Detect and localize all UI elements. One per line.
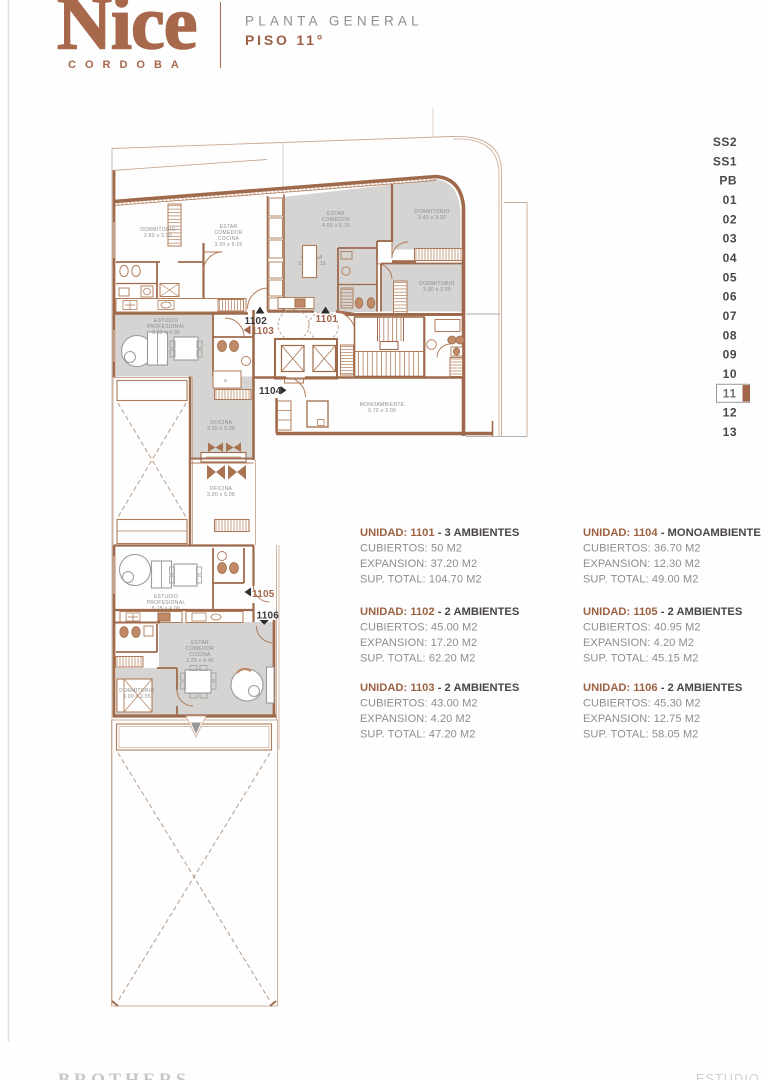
- svg-text:11: 11: [723, 388, 737, 400]
- svg-text:EXPANSION: 12.75 M2: EXPANSION: 12.75 M2: [583, 713, 700, 725]
- svg-text:SUP. TOTAL: 49.00 M2: SUP. TOTAL: 49.00 M2: [583, 574, 699, 586]
- svg-text:CUBIERTOS: 43.00 M2: CUBIERTOS: 43.00 M2: [360, 698, 478, 710]
- svg-text:3.00 x 2.65: 3.00 x 2.65: [123, 694, 151, 700]
- svg-text:Nice: Nice: [57, 0, 196, 66]
- svg-text:1101: 1101: [316, 314, 339, 325]
- svg-text:PLANTA GENERAL: PLANTA GENERAL: [245, 14, 423, 29]
- svg-text:3.40 x 3.30: 3.40 x 3.30: [418, 215, 446, 221]
- svg-text:9.70 x 3.00: 9.70 x 3.00: [368, 408, 396, 414]
- svg-text:13: 13: [723, 425, 737, 439]
- svg-text:UNIDAD: 1103 - 2 AMBIENTES: UNIDAD: 1103 - 2 AMBIENTES: [360, 682, 520, 694]
- svg-text:SUP. TOTAL: 62.20 M2: SUP. TOTAL: 62.20 M2: [360, 653, 476, 665]
- svg-text:CUBIERTOS: 45.00 M2: CUBIERTOS: 45.00 M2: [360, 622, 478, 634]
- svg-text:UNIDAD: 1101 - 3 AMBIENTES: UNIDAD: 1101 - 3 AMBIENTES: [360, 527, 520, 539]
- svg-text:05: 05: [723, 270, 737, 284]
- svg-text:12: 12: [723, 406, 737, 420]
- svg-text:CUBIERTOS: 45.30 M2: CUBIERTOS: 45.30 M2: [583, 698, 701, 710]
- svg-text:CUBIERTOS: 36.70 M2: CUBIERTOS: 36.70 M2: [583, 543, 701, 555]
- svg-text:3.20 x 5.15: 3.20 x 5.15: [214, 242, 242, 248]
- svg-text:3.15 x 4.05: 3.15 x 4.05: [152, 330, 180, 336]
- svg-text:08: 08: [723, 328, 737, 342]
- svg-text:UNIDAD: 1104 - MONOAMBIENTE: UNIDAD: 1104 - MONOAMBIENTE: [583, 527, 761, 539]
- svg-text:EXPANSION: 37.20 M2: EXPANSION: 37.20 M2: [360, 558, 477, 570]
- svg-text:06: 06: [723, 290, 737, 304]
- svg-text:3.00 x 5.08: 3.00 x 5.08: [207, 492, 235, 498]
- svg-text:SUP. TOTAL: 58.05 M2: SUP. TOTAL: 58.05 M2: [583, 729, 699, 741]
- svg-text:PISO 11°: PISO 11°: [245, 32, 325, 48]
- svg-text:09: 09: [723, 348, 737, 362]
- svg-text:2.80 x 3.00: 2.80 x 3.00: [144, 233, 172, 239]
- svg-text:EXPANSION: 12.30 M2: EXPANSION: 12.30 M2: [583, 558, 700, 570]
- svg-text:3.00 x 2.65: 3.00 x 2.65: [423, 287, 451, 293]
- svg-text:EXPANSION: 4.20 M2: EXPANSION: 4.20 M2: [360, 713, 471, 725]
- svg-text:ESTUDIO: ESTUDIO: [696, 1072, 760, 1080]
- svg-text:CORDOBA: CORDOBA: [68, 59, 188, 71]
- svg-text:SS1: SS1: [713, 154, 737, 168]
- svg-text:SS2: SS2: [713, 135, 737, 149]
- svg-text:UNIDAD: 1106 - 2 AMBIENTES: UNIDAD: 1106 - 2 AMBIENTES: [583, 682, 743, 694]
- svg-text:07: 07: [723, 309, 737, 323]
- svg-text:EXPANSION: 17.20 M2: EXPANSION: 17.20 M2: [360, 637, 477, 649]
- svg-text:10: 10: [723, 367, 737, 381]
- svg-text:3.20 x 5.08: 3.20 x 5.08: [207, 426, 235, 432]
- svg-text:PB: PB: [719, 174, 737, 188]
- svg-text:04: 04: [723, 251, 737, 265]
- svg-text:3.25 x 4.45: 3.25 x 4.45: [186, 658, 214, 664]
- svg-text:1105: 1105: [252, 589, 275, 600]
- svg-text:SUP. TOTAL: 47.20 M2: SUP. TOTAL: 47.20 M2: [360, 729, 476, 741]
- svg-text:EXPANSION: 4.20 M2: EXPANSION: 4.20 M2: [583, 637, 694, 649]
- svg-text:01: 01: [723, 193, 737, 207]
- svg-text:a: a: [224, 378, 227, 384]
- svg-text:1104: 1104: [259, 386, 282, 397]
- svg-text:1103: 1103: [252, 326, 275, 337]
- svg-text:BROTHERS: BROTHERS: [58, 1070, 190, 1080]
- svg-text:4.00 x 5.15: 4.00 x 5.15: [322, 223, 350, 229]
- svg-text:UNIDAD: 1102 - 2 AMBIENTES: UNIDAD: 1102 - 2 AMBIENTES: [360, 606, 520, 618]
- svg-text:CUBIERTOS: 40.95 M2: CUBIERTOS: 40.95 M2: [583, 622, 701, 634]
- svg-text:CUBIERTOS: 50 M2: CUBIERTOS: 50 M2: [360, 543, 462, 555]
- svg-text:UNIDAD: 1105 - 2 AMBIENTES: UNIDAD: 1105 - 2 AMBIENTES: [583, 606, 743, 618]
- svg-text:02: 02: [723, 212, 737, 226]
- svg-text:SUP. TOTAL: 104.70 M2: SUP. TOTAL: 104.70 M2: [360, 574, 482, 586]
- svg-text:1106: 1106: [257, 611, 280, 622]
- svg-text:SUP. TOTAL: 45.15 M2: SUP. TOTAL: 45.15 M2: [583, 653, 699, 665]
- svg-text:03: 03: [723, 232, 737, 246]
